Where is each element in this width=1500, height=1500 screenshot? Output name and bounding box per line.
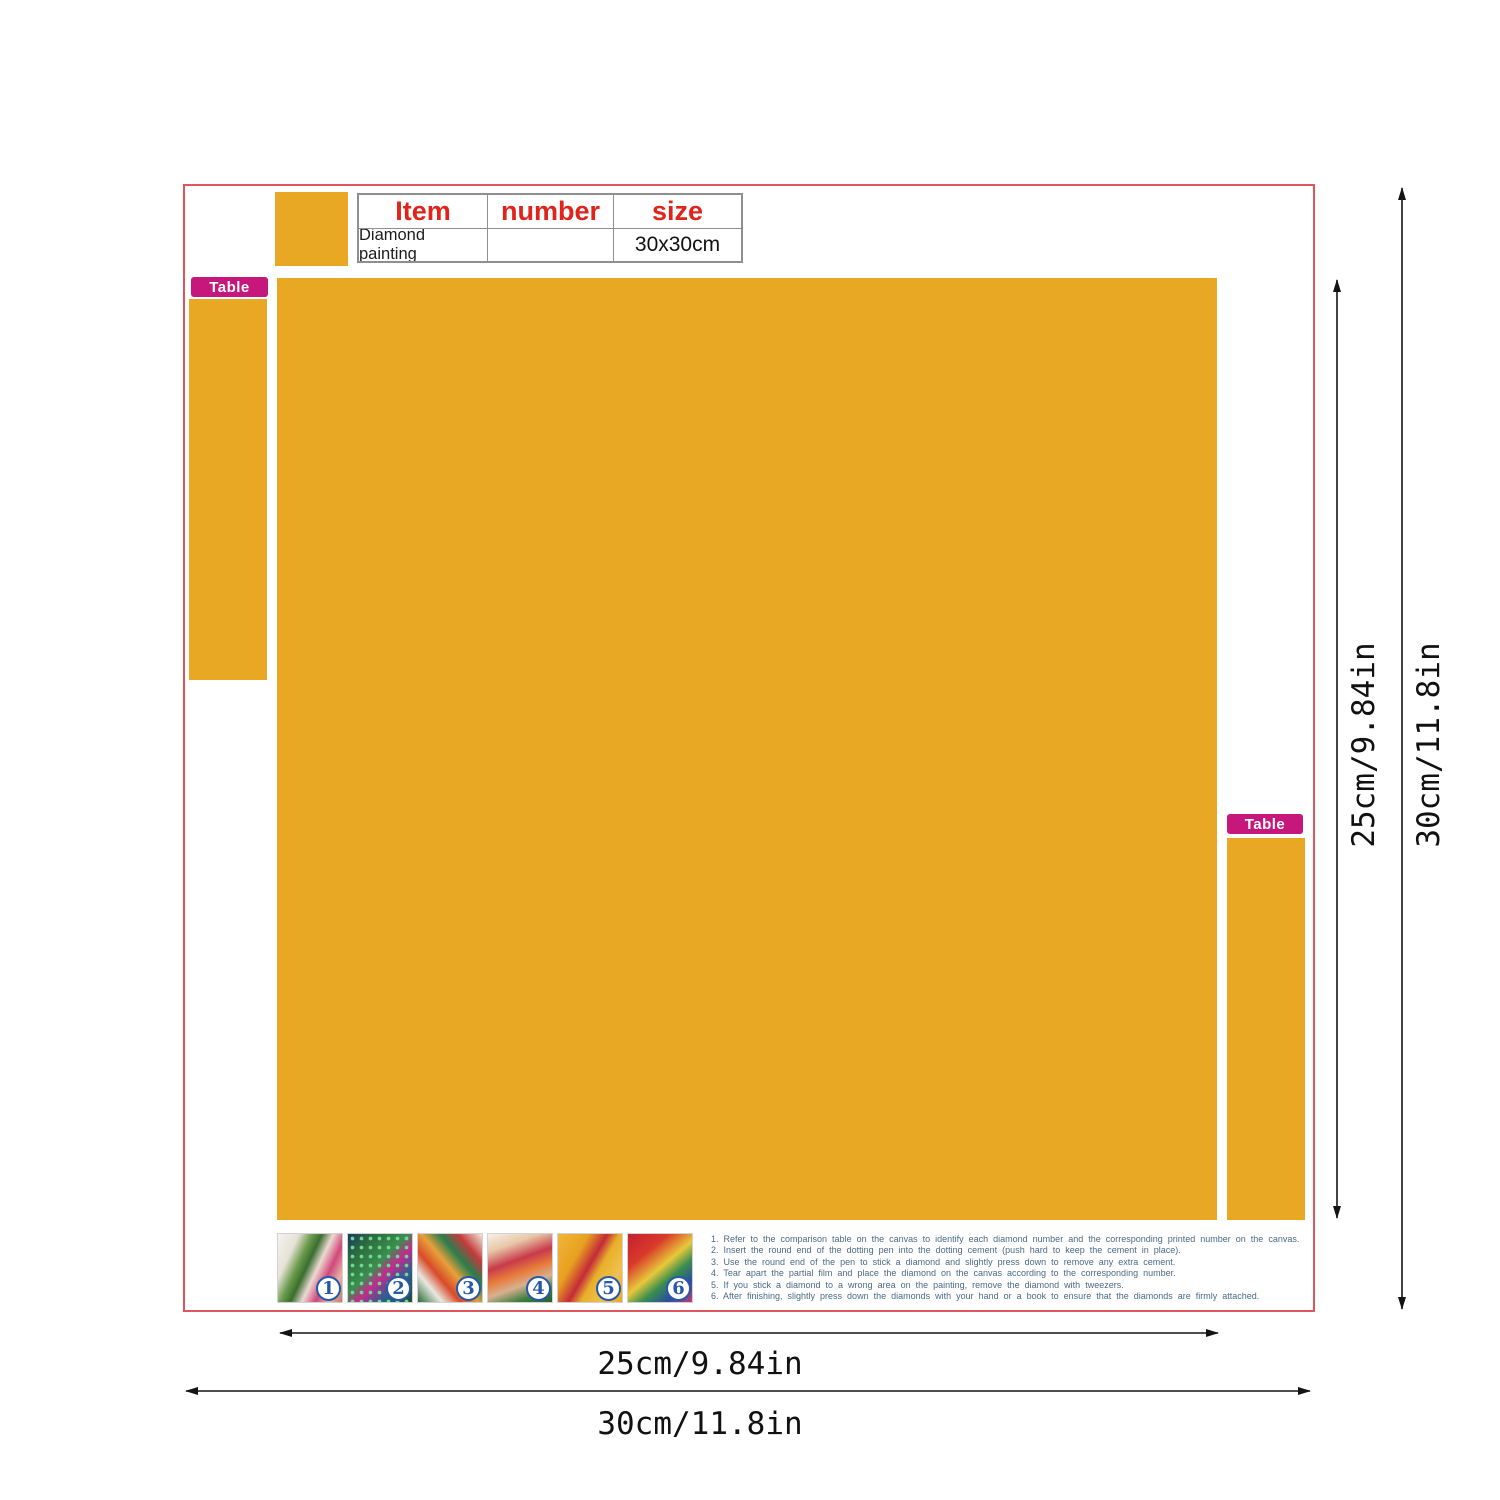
product-dimension-diagram: Item number size Diamond painting 30x30c…: [0, 0, 1500, 1500]
step-number-badge: 5: [596, 1276, 621, 1301]
step-number-badge: 1: [316, 1276, 341, 1301]
step-photo-2: 2: [347, 1233, 413, 1303]
instruction-step-4: 4. Tear apart the partial film and place…: [711, 1268, 1315, 1279]
canvas-color-swatch: [275, 192, 348, 266]
comparison-table-strip-right: [1227, 838, 1305, 1220]
step-number-badge: 3: [456, 1276, 481, 1301]
step-photo-1: 1: [277, 1233, 343, 1303]
step-number-badge: 4: [526, 1276, 551, 1301]
instruction-step-5: 5. If you stick a diamond to a wrong are…: [711, 1280, 1315, 1291]
step-photo-6: 6: [627, 1233, 693, 1303]
table-header-size: size: [613, 195, 741, 228]
diamond-painting-canvas: [277, 278, 1217, 1220]
table-cell-size: 30x30cm: [613, 228, 741, 261]
label-outer-height: 30cm/11.8in: [1411, 642, 1447, 847]
instruction-step-1: 1. Refer to the comparison table on the …: [711, 1234, 1315, 1245]
label-inner-height: 25cm/9.84in: [1346, 642, 1382, 847]
instruction-list: 1. Refer to the comparison table on the …: [711, 1234, 1315, 1302]
label-outer-width: 30cm/11.8in: [597, 1406, 802, 1442]
step-photo-4: 4: [487, 1233, 553, 1303]
table-tag-right: Table: [1227, 814, 1303, 834]
instruction-step-6: 6. After finishing, slightly press down …: [711, 1291, 1315, 1302]
step-photos-row: 1 2 3 4 5 6: [277, 1233, 693, 1303]
table-cell-item: Diamond painting: [359, 228, 487, 261]
table-header-item: Item: [359, 195, 487, 228]
table-tag-left: Table: [191, 277, 268, 297]
instruction-step-3: 3. Use the round end of the pen to stick…: [711, 1257, 1315, 1268]
step-number-badge: 2: [386, 1276, 411, 1301]
step-photo-5: 5: [557, 1233, 623, 1303]
step-number-badge: 6: [666, 1276, 691, 1301]
comparison-table-strip-left: [189, 299, 267, 680]
table-header-number: number: [487, 195, 613, 228]
table-cell-number: [487, 228, 613, 261]
product-info-table: Item number size Diamond painting 30x30c…: [357, 193, 743, 263]
instruction-step-2: 2. Insert the round end of the dotting p…: [711, 1245, 1315, 1256]
step-photo-3: 3: [417, 1233, 483, 1303]
label-inner-width: 25cm/9.84in: [597, 1346, 802, 1382]
